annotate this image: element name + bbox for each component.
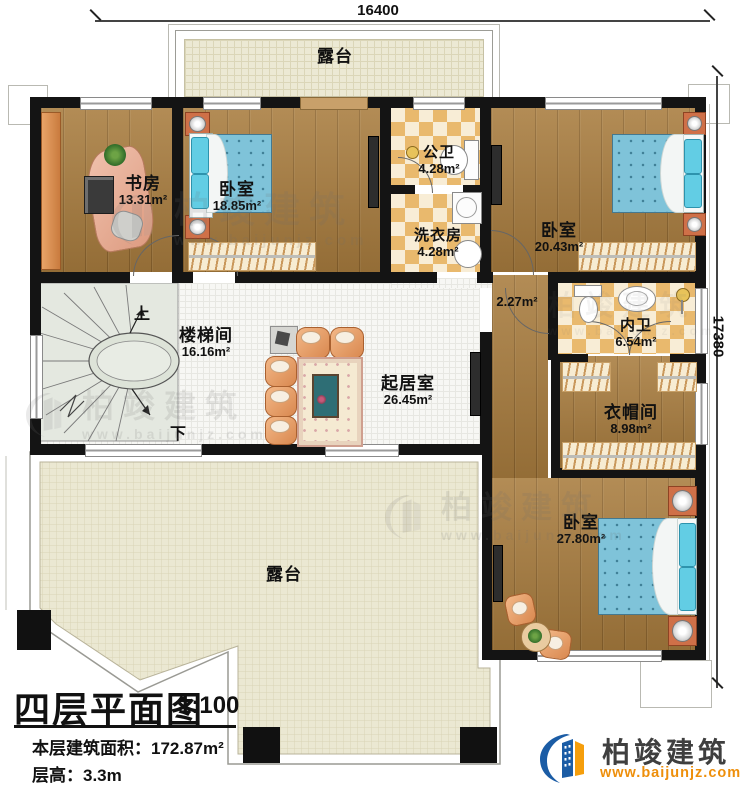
tv-panel [491, 145, 502, 205]
study-cabinet [41, 112, 61, 270]
nightstand [185, 215, 210, 239]
cloakroom-label: 衣帽间8.98m² [604, 403, 658, 437]
stairwell-label: 楼梯间16.16m² [179, 326, 233, 360]
toilet-roll-holder [406, 146, 419, 159]
floor-area-text: 本层建筑面积：172.87m² [32, 734, 224, 759]
pillow [684, 174, 702, 208]
nightstand [683, 213, 706, 236]
window [695, 383, 708, 445]
wall-masterbath-bottom [670, 354, 695, 362]
sofa-cushion [265, 356, 297, 387]
plant [104, 144, 126, 166]
floor-height-text: 层高：3.3m [32, 761, 122, 786]
pillow [191, 137, 209, 174]
nightstand [683, 112, 706, 135]
sofa-cushion [296, 327, 330, 359]
wardrobe [562, 362, 611, 392]
bedroom3-label: 卧室27.80m² [557, 513, 605, 547]
wardrobe [562, 442, 696, 470]
wall-suite-left [482, 444, 492, 660]
study-label: 书房13.31m² [119, 174, 167, 208]
coffee-table [312, 374, 339, 418]
wall-segment [235, 272, 437, 283]
toilet-bowl [579, 296, 598, 323]
stairs-up-label: 上 [134, 300, 150, 324]
terrace-pillar [460, 727, 497, 763]
sofa-cushion [265, 416, 297, 445]
master-bath-label: 内卫6.54m² [615, 318, 656, 349]
tv-panel [493, 545, 503, 602]
terrace-top-label: 露台 [317, 47, 353, 67]
window [413, 97, 465, 110]
wall-segment [548, 272, 706, 283]
laundry-label: 洗衣房4.28m² [414, 228, 462, 259]
nightstand [668, 616, 697, 646]
pillow [679, 567, 696, 611]
pillow [191, 174, 209, 209]
wall-corridor-right [551, 360, 560, 468]
title-underline [14, 725, 236, 728]
living-label: 起居室26.45m² [381, 374, 435, 408]
nightstand [668, 486, 697, 516]
side-table-speaker [275, 331, 290, 346]
wall-masterbath-bottom [558, 354, 588, 362]
washer-drum [456, 197, 477, 218]
sink-basin [626, 291, 648, 306]
window [80, 97, 152, 110]
dimension-right-label: 17380 [710, 307, 727, 367]
bedroom1-label: 卧室18.85m² [213, 180, 261, 214]
public-bath-label: 公卫4.28m² [418, 145, 459, 176]
pillow [684, 139, 702, 174]
wall-segment [30, 272, 130, 283]
wall-bedroom1-bath [380, 108, 391, 272]
plan-scale: 1:100 [178, 692, 239, 720]
brand-website: www.baijunjz.com [600, 765, 741, 781]
window [695, 288, 708, 354]
window [30, 335, 43, 419]
flower-decor [317, 395, 326, 404]
sofa-cushion [265, 386, 297, 417]
tv-panel [470, 352, 481, 416]
wardrobe [188, 242, 316, 271]
plant [528, 629, 542, 643]
tv-panel [368, 136, 379, 208]
floor-plan-canvas: 露台 露台 [0, 0, 750, 797]
pillow [679, 523, 696, 567]
shower-rail [681, 300, 683, 314]
terrace-pillar [243, 727, 280, 763]
wall-living-right [480, 332, 492, 444]
terrace-bottom-label: 露台 [266, 565, 302, 585]
sofa-cushion [330, 327, 364, 359]
desk-monitor [84, 176, 114, 214]
shower-head [676, 288, 690, 302]
stairs-down-label: 下 [170, 420, 186, 444]
terrace-door-opening [300, 97, 368, 110]
dimension-line-right [716, 76, 718, 688]
wall-masterbath-left [548, 278, 558, 360]
wall-bath-bedroom2 [480, 108, 491, 272]
right-eaves-line [709, 104, 710, 660]
spiral-stairs [30, 283, 180, 444]
corner-outline-bottomright [640, 660, 712, 708]
window [203, 97, 261, 110]
window [545, 97, 662, 110]
dimension-top-label: 16400 [340, 2, 416, 19]
brand-logo-icon [538, 730, 598, 788]
hallway-label: 2.27m² [496, 295, 537, 310]
wardrobe [657, 362, 697, 392]
window [85, 444, 202, 457]
terrace-pillar [17, 610, 51, 650]
wardrobe [578, 242, 696, 271]
dimension-line-top [95, 20, 710, 22]
bedroom2-label: 卧室20.43m² [535, 221, 583, 255]
